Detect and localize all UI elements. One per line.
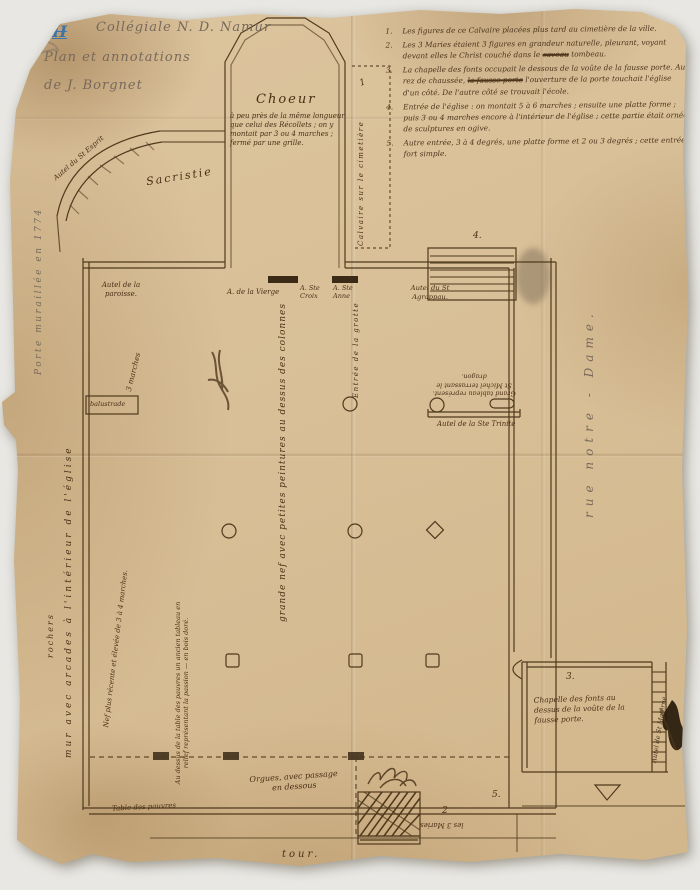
paper-sheet: II Collégiale N. D. Namur Plan et annota… [0, 0, 700, 890]
inventory-number: II [52, 22, 67, 43]
paper-shadow: II Collégiale N. D. Namur Plan et annota… [0, 0, 700, 890]
calvary-label: Calvaire sur le cimetière [357, 121, 366, 246]
annotation-item: 1. Les figures de ce Calvaire placées pl… [385, 22, 687, 36]
annotation-number: 3. [386, 65, 401, 98]
struck-text: caveau [543, 50, 569, 59]
parish-altar-label: Autel de la paroisse. [90, 281, 152, 299]
annotation-text-part: Entrée de l'église : on montait 5 à 6 ma… [403, 99, 688, 133]
annotation-number: 5. [386, 137, 401, 159]
annotation-text-part: tombeau. [569, 49, 606, 58]
annotation-item: 5. Autre entrée, 3 à 4 degrés, une platt… [386, 134, 688, 159]
balustrade-label: balustrade [90, 400, 125, 408]
annotation-item: 4. Entrée de l'église : on montait 5 à 6… [386, 98, 688, 134]
annotation-number: 4. [386, 101, 401, 134]
struck-text: la fausse porte [468, 76, 523, 86]
annotation-text: Entrée de l'église : on montait 5 à 6 ma… [403, 98, 688, 134]
marker-3: 3. [566, 672, 575, 684]
annotation-text: La chapelle des fonts occupait le dessou… [403, 62, 688, 98]
annotation-item: 3. La chapelle des fonts occupait le des… [386, 62, 688, 98]
font-chapel-note: Chapelle des fonts au dessus de la voûte… [534, 692, 637, 725]
annotation-text-part: Autre entrée, 3 à 4 degrés, une platte f… [403, 135, 685, 158]
annotation-text: Les 3 Maries étaient 3 figures en grande… [402, 37, 687, 62]
rocks-label: rochers [46, 613, 56, 658]
annotation-text-part: Les 3 Maries étaient 3 figures en grande… [402, 38, 666, 61]
choir-note: à peu près de la même longueur que celui… [230, 112, 348, 148]
holy-cross-altar-label: A. Ste Croix [300, 284, 330, 301]
annotation-item: 2. Les 3 Maries étaient 3 figures en gra… [385, 37, 687, 62]
virgin-altar-label: A. de la Vierge [227, 288, 279, 297]
nave-label: grande nef avec petites peintures au des… [278, 303, 290, 622]
annotation-number: 2. [385, 40, 400, 62]
choir-label: Choeur [256, 92, 316, 109]
grotto-entrance-label: Entrée de la grotte [352, 302, 361, 398]
st-anne-altar-label: A. Ste Anne [333, 284, 359, 301]
tower-label: tour. [282, 848, 320, 861]
street-name-label: rue notre - Dame. [582, 308, 598, 518]
annotation-number: 1. [385, 25, 400, 36]
marker-4: 4. [473, 231, 482, 243]
annotation-text: Autre entrée, 3 à 4 degrés, une platte f… [403, 134, 688, 159]
page-title: Collégiale N. D. Namur [96, 20, 271, 37]
walled-door-note: Porte muraillée en 1774 [34, 207, 46, 375]
marker-5: 5. [492, 790, 501, 802]
three-maries-label: les 3 Maries [420, 820, 464, 829]
altar-blocks [268, 276, 358, 283]
author-line: de J. Borgnet [44, 78, 143, 95]
st-michael-painting-note: Grand tableau représent. St Michel terra… [430, 372, 518, 397]
arcade-wall-note: mur avec arcades à l'intérieur de l'égli… [64, 445, 76, 758]
annotation-text-part: Les figures de ce Calvaire placées plus … [402, 24, 656, 36]
marker-2: 2 [442, 806, 448, 818]
annotation-list: 1. Les figures de ce Calvaire placées pl… [385, 22, 688, 162]
st-agrappau-altar-label: Autel du St Agrappau. [400, 284, 460, 302]
scanned-manuscript-plan: II Collégiale N. D. Namur Plan et annota… [0, 0, 700, 890]
trinity-altar-label: Autel de la Ste Trinité [437, 420, 515, 429]
font-chapel-walls [513, 660, 668, 800]
passion-relief-note: Au dessus de la table des pauvres un anc… [174, 594, 191, 792]
page-subtitle: Plan et annotations [44, 50, 191, 67]
tower-hatched-steps [358, 769, 420, 845]
annotation-text: Les figures de ce Calvaire placées plus … [402, 22, 687, 36]
